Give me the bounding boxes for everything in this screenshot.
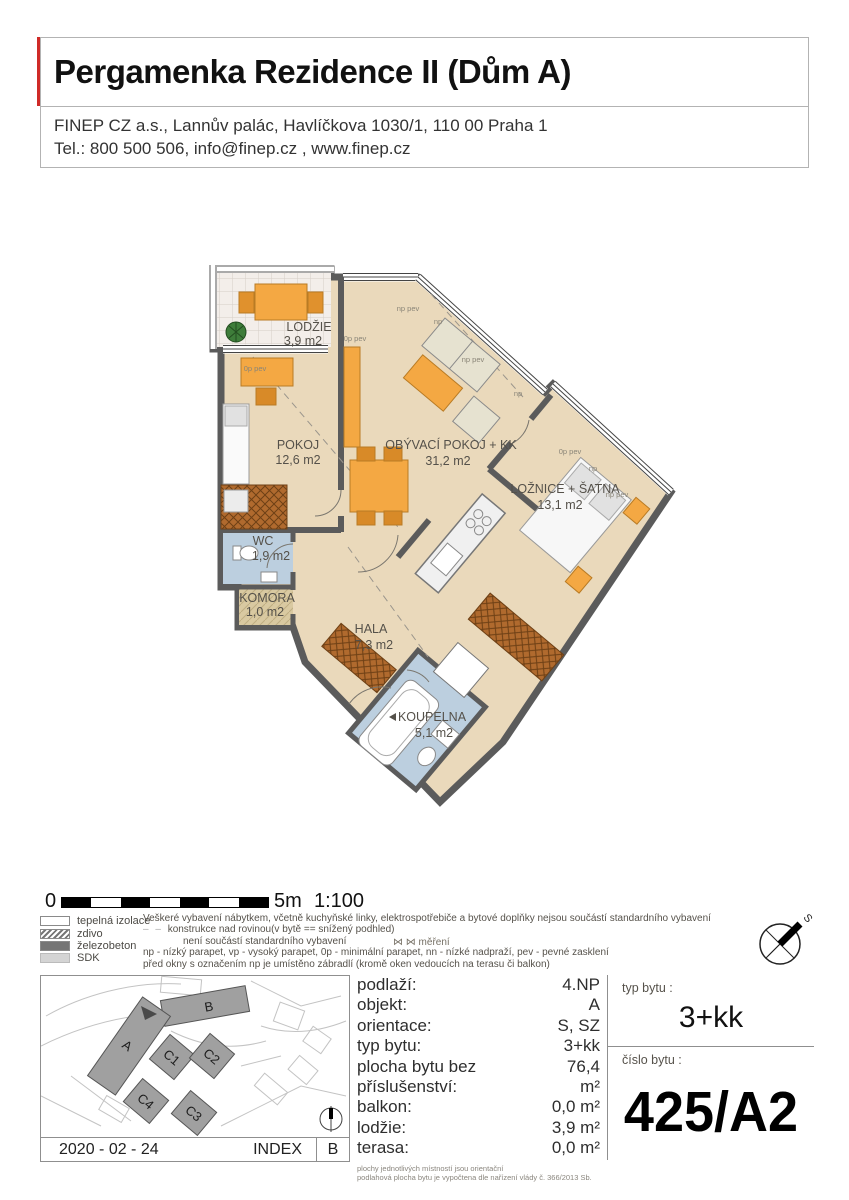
label-pokoj: POKOJ — [277, 438, 319, 452]
unit-type-label: typ bytu : — [608, 975, 814, 995]
izolace-swatch — [40, 916, 70, 926]
zelezobeton-swatch — [40, 941, 70, 951]
scale-ratio: 1:100 — [314, 890, 364, 913]
svg-text:3,9 m2: 3,9 m2 — [284, 334, 322, 348]
floor-plan: LODŽIE 3,9 m2 POKOJ 12,6 m2 OBÝVACÍ POKO… — [193, 252, 693, 822]
label-obyvaci: OBÝVACÍ POKOJ + KK — [385, 437, 517, 452]
info-row-balkon: balkon:0,0 m² — [357, 1097, 600, 1117]
label-wc: WC — [253, 534, 274, 548]
svg-text:np: np — [514, 389, 522, 398]
notes-line1: Veškeré vybavení nábytkem, včetně kuchyň… — [143, 913, 723, 924]
legend-item-sdk: SDK — [40, 952, 150, 964]
notes: Veškeré vybavení nábytkem, včetně kuchyň… — [143, 913, 723, 970]
label-lodzie: LODŽIE — [286, 319, 331, 334]
company-address: FINEP CZ a.s., Lannův palác, Havlíčkova … — [41, 107, 808, 160]
sdk-swatch — [40, 953, 70, 963]
zdivo-swatch — [40, 929, 70, 939]
header: Pergamenka Rezidence II (Dům A) FINEP CZ… — [40, 37, 809, 168]
page: Pergamenka Rezidence II (Dům A) FINEP CZ… — [0, 0, 849, 1200]
sitemap-footer: 2020 - 02 - 24 INDEX B — [41, 1137, 349, 1161]
index-label: INDEX — [253, 1141, 316, 1159]
svg-text:5,1 m2: 5,1 m2 — [415, 726, 453, 740]
mereni-symbols: ⋈ ⋈ měření — [393, 937, 450, 948]
info-row-orientace: orientace:S, SZ — [357, 1016, 600, 1036]
legend-item-izolace: tepelná izolace — [40, 915, 150, 927]
svg-text:0p pev: 0p pev — [559, 447, 582, 456]
scale-zero: 0 — [45, 890, 56, 913]
svg-text:0p pev: 0p pev — [344, 334, 367, 343]
svg-text:0p pev: 0p pev — [244, 364, 267, 373]
address-line2: Tel.: 800 500 506, info@finep.cz , www.f… — [54, 137, 795, 160]
info-row-terasa: terasa:0,0 m² — [357, 1138, 600, 1158]
info-row-podlazi: podlaží:4.NP — [357, 975, 600, 995]
notes-line4: np - nízký parapet, vp - vysoký parapet,… — [143, 947, 723, 958]
svg-text:np: np — [589, 464, 597, 473]
svg-text:12,6 m2: 12,6 m2 — [275, 453, 320, 467]
info-row-plocha: plocha bytu bez příslušenství:76,4 m² — [357, 1057, 600, 1098]
label-koupelna: KOUPELNA — [398, 710, 467, 724]
legend: tepelná izolace zdivo železobeton SDK — [40, 915, 150, 965]
notes-line2: konstrukce nad rovinou(v bytě == snížený… — [168, 924, 395, 935]
legend-item-zdivo: zdivo — [40, 927, 150, 939]
svg-text:np pev: np pev — [397, 304, 420, 313]
info-row-lodzie: lodžie:3,9 m² — [357, 1118, 600, 1138]
index-value: B — [317, 1141, 349, 1159]
unit-info-panel: podlaží:4.NP objekt:A orientace:S, SZ ty… — [357, 975, 600, 1160]
sitemap-compass-icon — [320, 1106, 342, 1132]
unit-type-value: 3+kk — [608, 1001, 814, 1035]
label-loznice: LOŽNICE + ŠATNA — [510, 481, 620, 496]
fine-print: plochy jednotlivých místností jsou orien… — [357, 1164, 600, 1182]
plan-date: 2020 - 02 - 24 — [41, 1141, 253, 1159]
scale-bar — [61, 897, 269, 908]
svg-text:7,3 m2: 7,3 m2 — [355, 638, 393, 652]
legend-item-zelezobeton: železobeton — [40, 940, 150, 952]
svg-text:np pev: np pev — [606, 490, 629, 499]
label-komora: KOMORA — [239, 591, 295, 605]
compass: S — [742, 897, 822, 983]
svg-text:np pev: np pev — [462, 355, 485, 364]
compass-north-label: S — [801, 912, 815, 925]
info-row-objekt: objekt:A — [357, 995, 600, 1015]
svg-text:1,0 m2: 1,0 m2 — [246, 605, 284, 619]
notes-line5: před okny s označením np je umístěno záb… — [143, 959, 723, 970]
svg-text:13,1 m2: 13,1 m2 — [537, 498, 582, 512]
info-row-typ-bytu: typ bytu:3+kk — [357, 1036, 600, 1056]
scale-five: 5m — [274, 890, 302, 913]
svg-text:1,9 m2: 1,9 m2 — [252, 549, 290, 563]
svg-text:np: np — [434, 317, 442, 326]
sitemap: B A C1 C2 C4 C3 2020 - 02 - 24 INDEX B — [40, 975, 350, 1162]
unit-number-label: číslo bytu : — [608, 1047, 814, 1067]
address-line1: FINEP CZ a.s., Lannův palác, Havlíčkova … — [54, 114, 795, 137]
unit-id-panel: typ bytu : 3+kk číslo bytu : 425/A2 — [607, 975, 814, 1160]
unit-number-value: 425/A2 — [608, 1079, 814, 1144]
svg-text:31,2 m2: 31,2 m2 — [425, 454, 470, 468]
page-title: Pergamenka Rezidence II (Dům A) — [41, 38, 808, 107]
label-hala: HALA — [355, 622, 388, 636]
sitemap-drawing: B A C1 C2 C4 C3 — [41, 976, 347, 1136]
